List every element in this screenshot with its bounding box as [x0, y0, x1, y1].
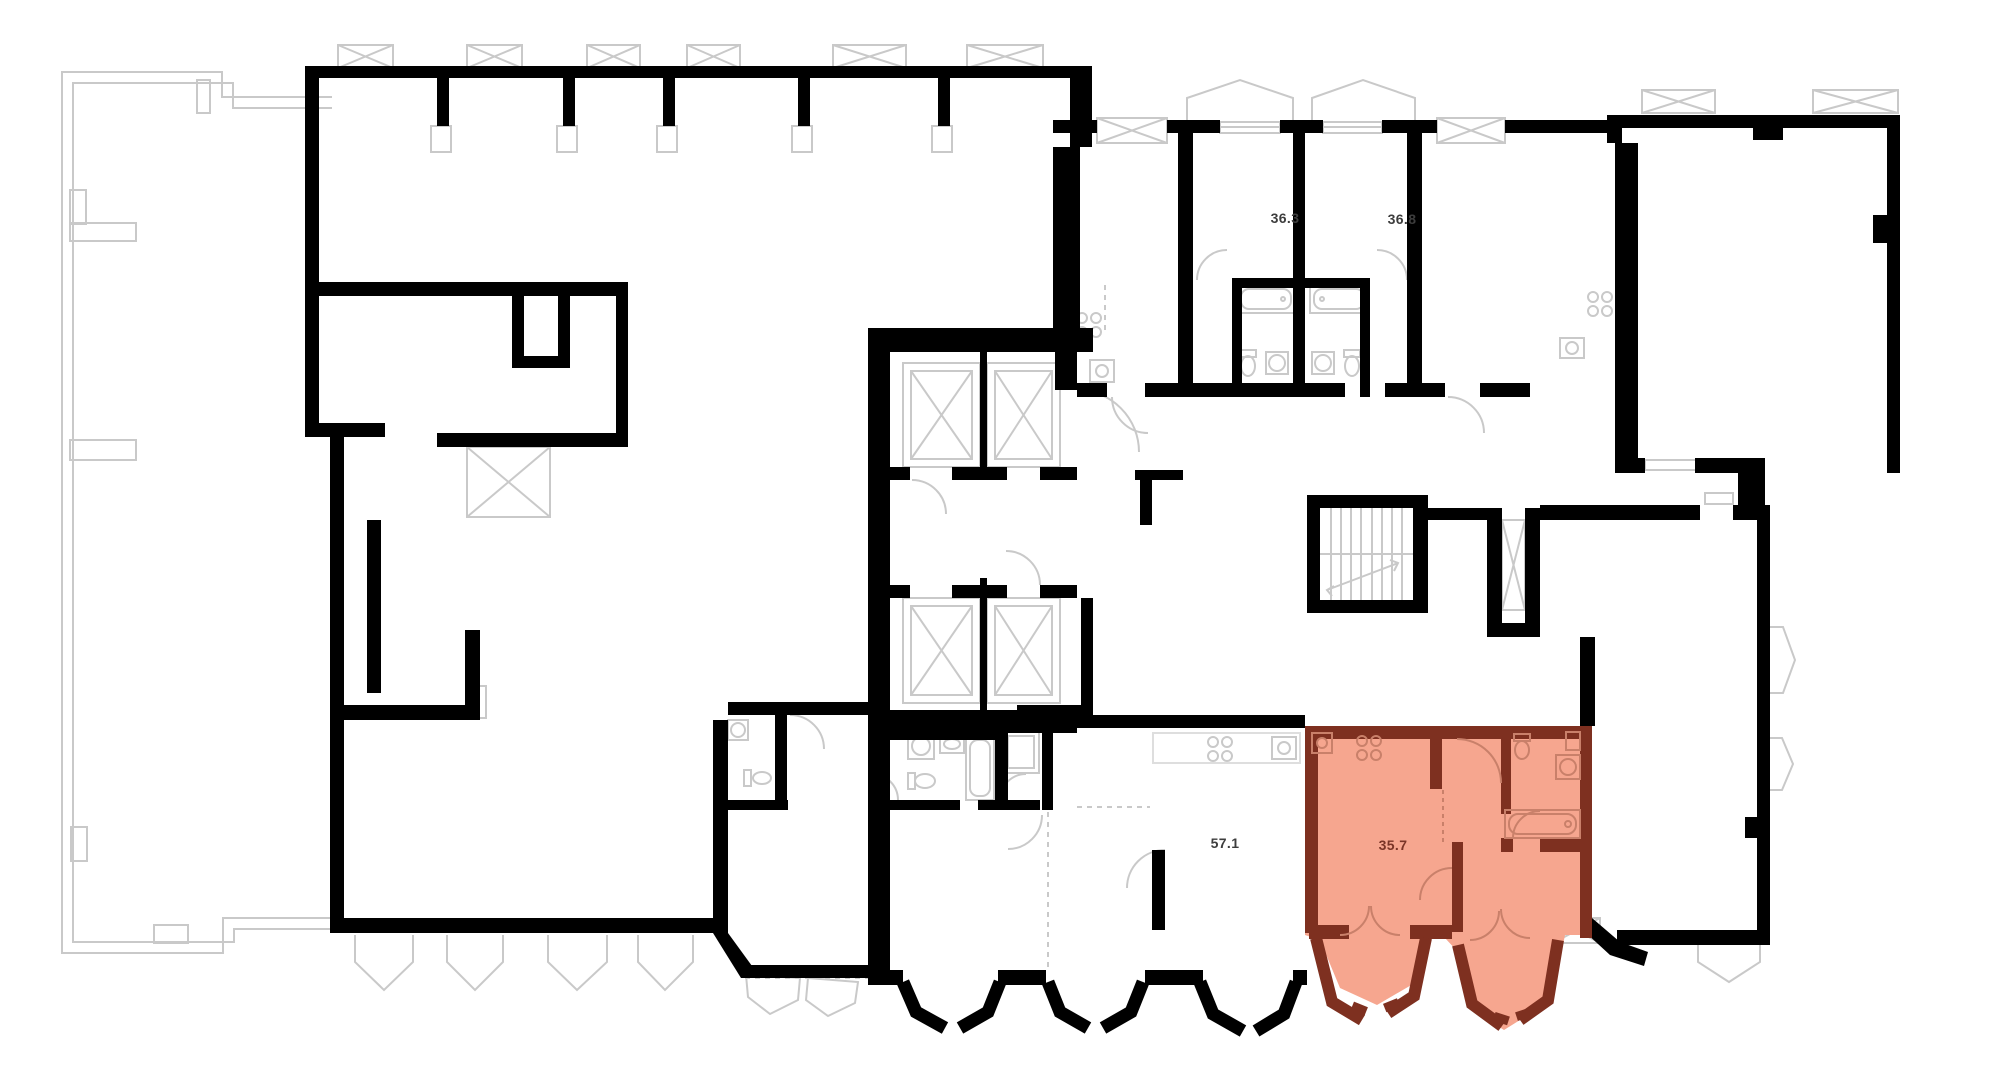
- window-mullion: [792, 126, 812, 152]
- highlighted-unit: [1305, 726, 1592, 1030]
- floor-plan: 36.3 36.8 57.1 35.7: [0, 0, 2000, 1073]
- window-mullion: [431, 126, 451, 152]
- window-mullion: [657, 126, 677, 152]
- window-sill: [70, 223, 136, 241]
- window-sill: [70, 440, 136, 460]
- area-label-36-3: 36.3: [1271, 210, 1300, 226]
- terrace-outline: [62, 72, 334, 953]
- terrace-outline-inner: [73, 83, 334, 942]
- area-label-57-1: 57.1: [1211, 835, 1240, 851]
- stair-direction-arrow: [1327, 560, 1398, 596]
- window-mullion: [932, 126, 952, 152]
- unit-region-57-1[interactable]: [1093, 728, 1305, 968]
- stairwell: [1320, 508, 1413, 600]
- area-label-36-8: 36.8: [1388, 211, 1417, 227]
- floor-plan-svg: 36.3 36.8 57.1 35.7: [0, 0, 2000, 1073]
- window-sill: [154, 925, 188, 943]
- window-mullion: [557, 126, 577, 152]
- bay-window-walls: [903, 982, 1296, 1031]
- window-sill: [197, 80, 210, 113]
- area-label-35-7: 35.7: [1379, 837, 1408, 853]
- elevator-shafts: [903, 363, 1525, 703]
